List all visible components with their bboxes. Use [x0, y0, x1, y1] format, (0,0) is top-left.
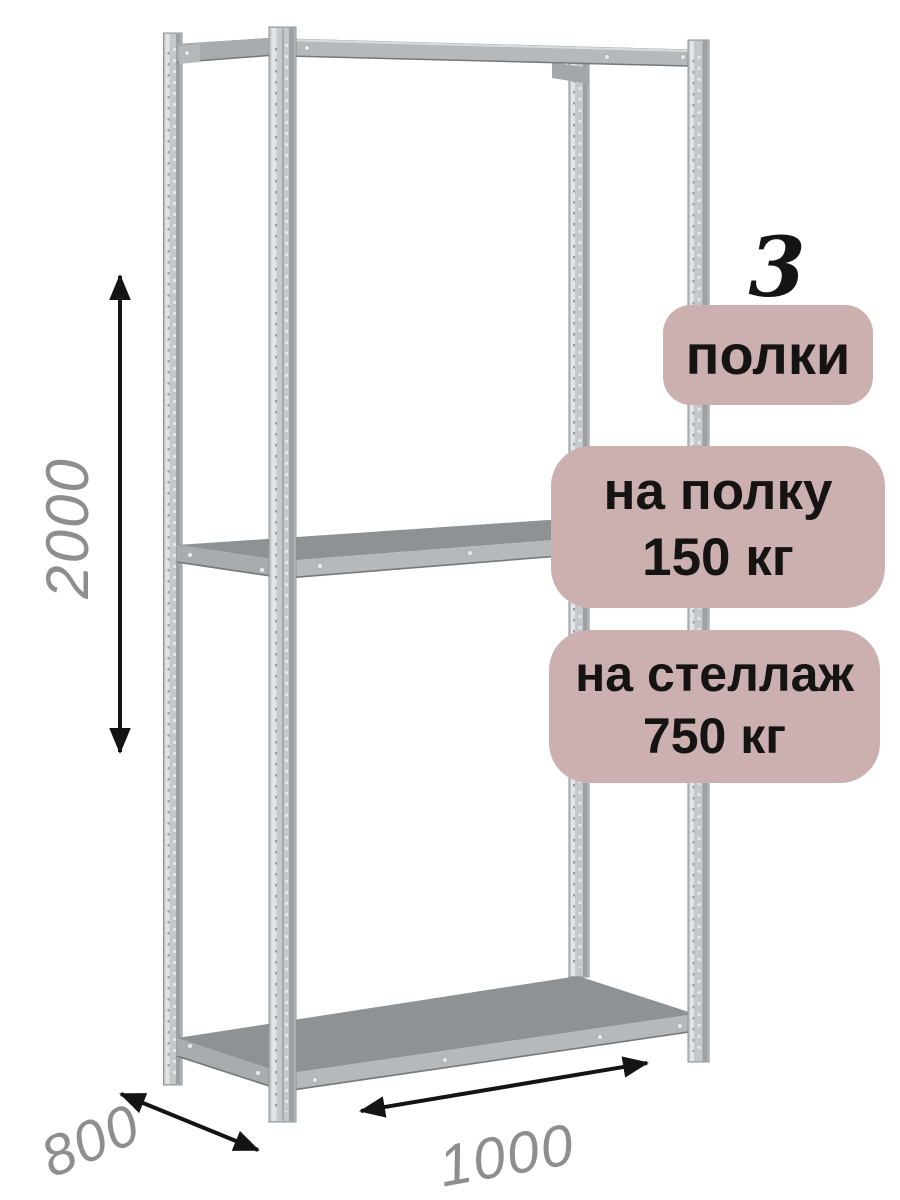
badge-shelf-count-label: полки [686, 323, 851, 386]
per-rack-load-value: 750 кг [549, 705, 880, 767]
badge-per-shelf-load: на полку 150 кг [551, 446, 885, 608]
per-rack-load-caption: на стеллаж [549, 643, 880, 705]
height-dimension-label: 2000 [32, 443, 104, 613]
per-shelf-load-caption: на полку [551, 459, 885, 525]
per-shelf-load-value: 150 кг [551, 525, 885, 591]
shelf-count-number: 3 [732, 218, 822, 318]
badge-shelf-count: полки [663, 305, 873, 405]
product-diagram: 2000 800 1000 3 полки на полку 150 кг на… [0, 0, 900, 1200]
badge-per-rack-load: на стеллаж 750 кг [549, 630, 880, 783]
top-shelf [177, 38, 708, 67]
bottom-shelf [177, 976, 695, 1092]
